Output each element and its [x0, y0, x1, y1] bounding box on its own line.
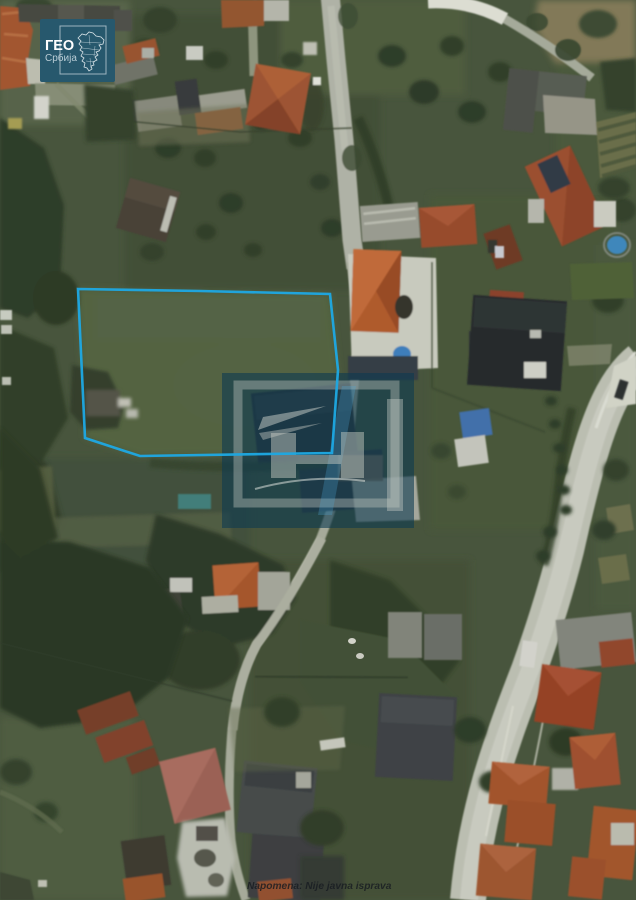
svg-text:ГЕО: ГЕО	[45, 38, 74, 54]
svg-text:Србија: Србија	[45, 52, 77, 64]
svg-text:Napomena: Nije javna isprava: Napomena: Nije javna isprava	[247, 881, 392, 892]
